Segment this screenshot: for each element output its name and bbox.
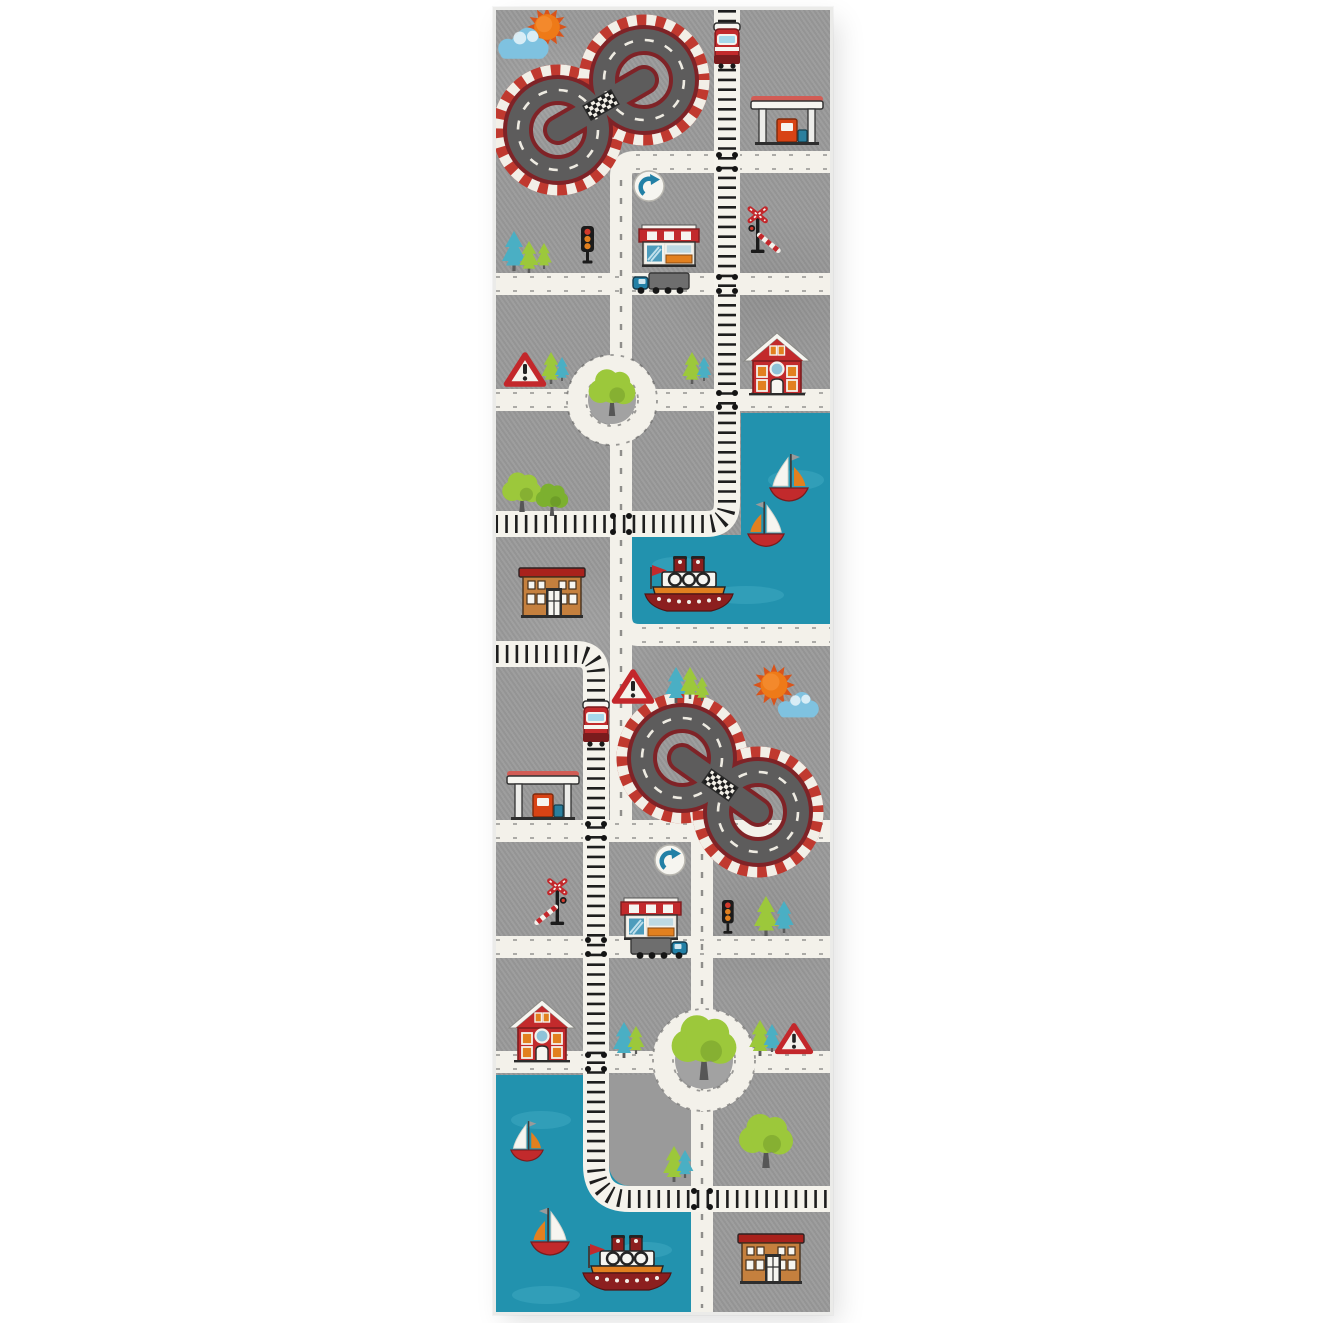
awning-shop <box>621 898 681 940</box>
traffic-light <box>722 900 734 934</box>
railroad-crossing-signal <box>748 209 778 253</box>
train-engine <box>714 23 740 69</box>
warning-triangle-sign <box>507 355 544 384</box>
image-description: Kids play rug runner with gray city road… <box>0 0 1 1</box>
photo-backdrop: Kids play rug runner with gray city road… <box>0 0 1323 1323</box>
rug-illustration <box>496 10 830 1312</box>
warning-triangle-sign <box>777 1026 810 1052</box>
station-building <box>519 568 585 618</box>
gas-station <box>751 96 823 145</box>
cloud-icon <box>778 692 819 717</box>
gas-station <box>507 771 579 820</box>
train-engine <box>583 701 609 747</box>
red-cottage <box>509 1000 575 1062</box>
awning-shop <box>639 225 699 267</box>
railroad-crossing-signal <box>537 881 567 925</box>
roundabout-sign-icon <box>634 171 664 201</box>
racetrack-middle <box>622 698 818 872</box>
roundabout-sign-icon <box>655 845 685 875</box>
station-building <box>738 1234 804 1284</box>
sun-icon <box>753 664 795 706</box>
red-cottage <box>744 333 810 395</box>
play-rug <box>496 10 830 1312</box>
traffic-light <box>581 226 594 264</box>
